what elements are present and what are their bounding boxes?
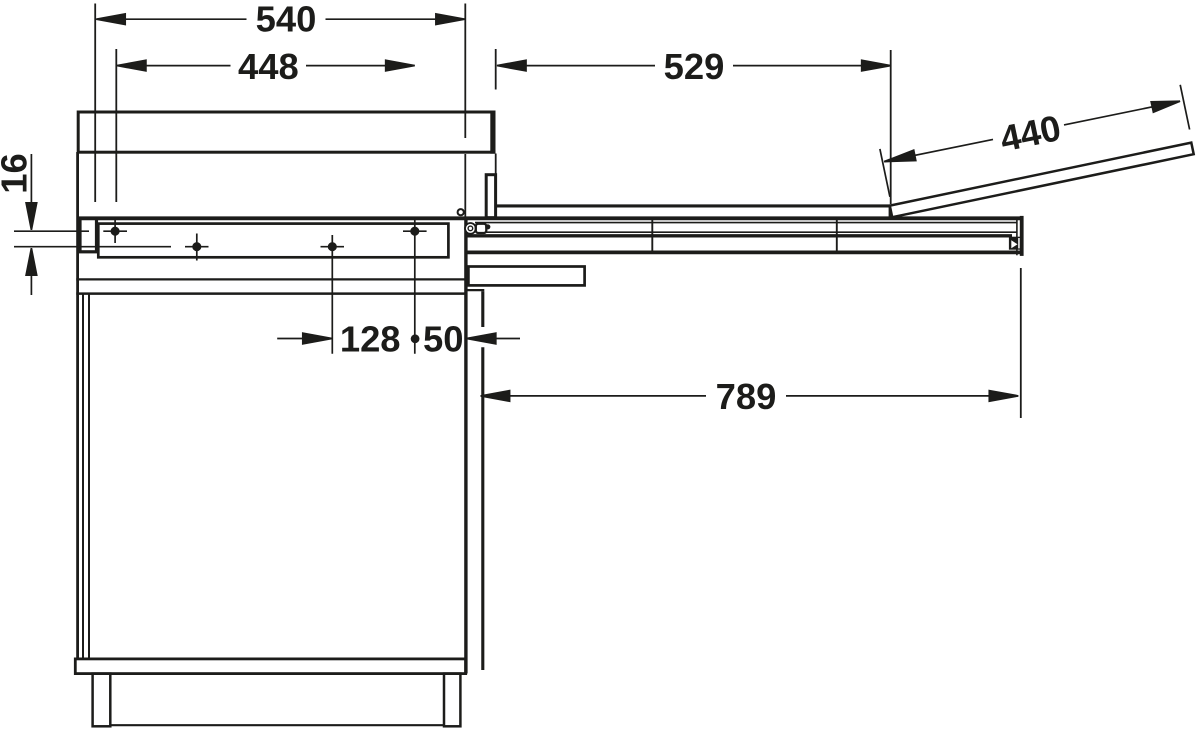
svg-text:440: 440 xyxy=(996,107,1064,160)
svg-text:789: 789 xyxy=(716,376,777,417)
svg-text:448: 448 xyxy=(238,46,299,87)
svg-text:540: 540 xyxy=(256,0,317,40)
svg-text:16: 16 xyxy=(0,153,35,193)
svg-text:128: 128 xyxy=(340,319,401,360)
svg-text:50: 50 xyxy=(423,319,463,360)
svg-text:529: 529 xyxy=(664,46,725,87)
